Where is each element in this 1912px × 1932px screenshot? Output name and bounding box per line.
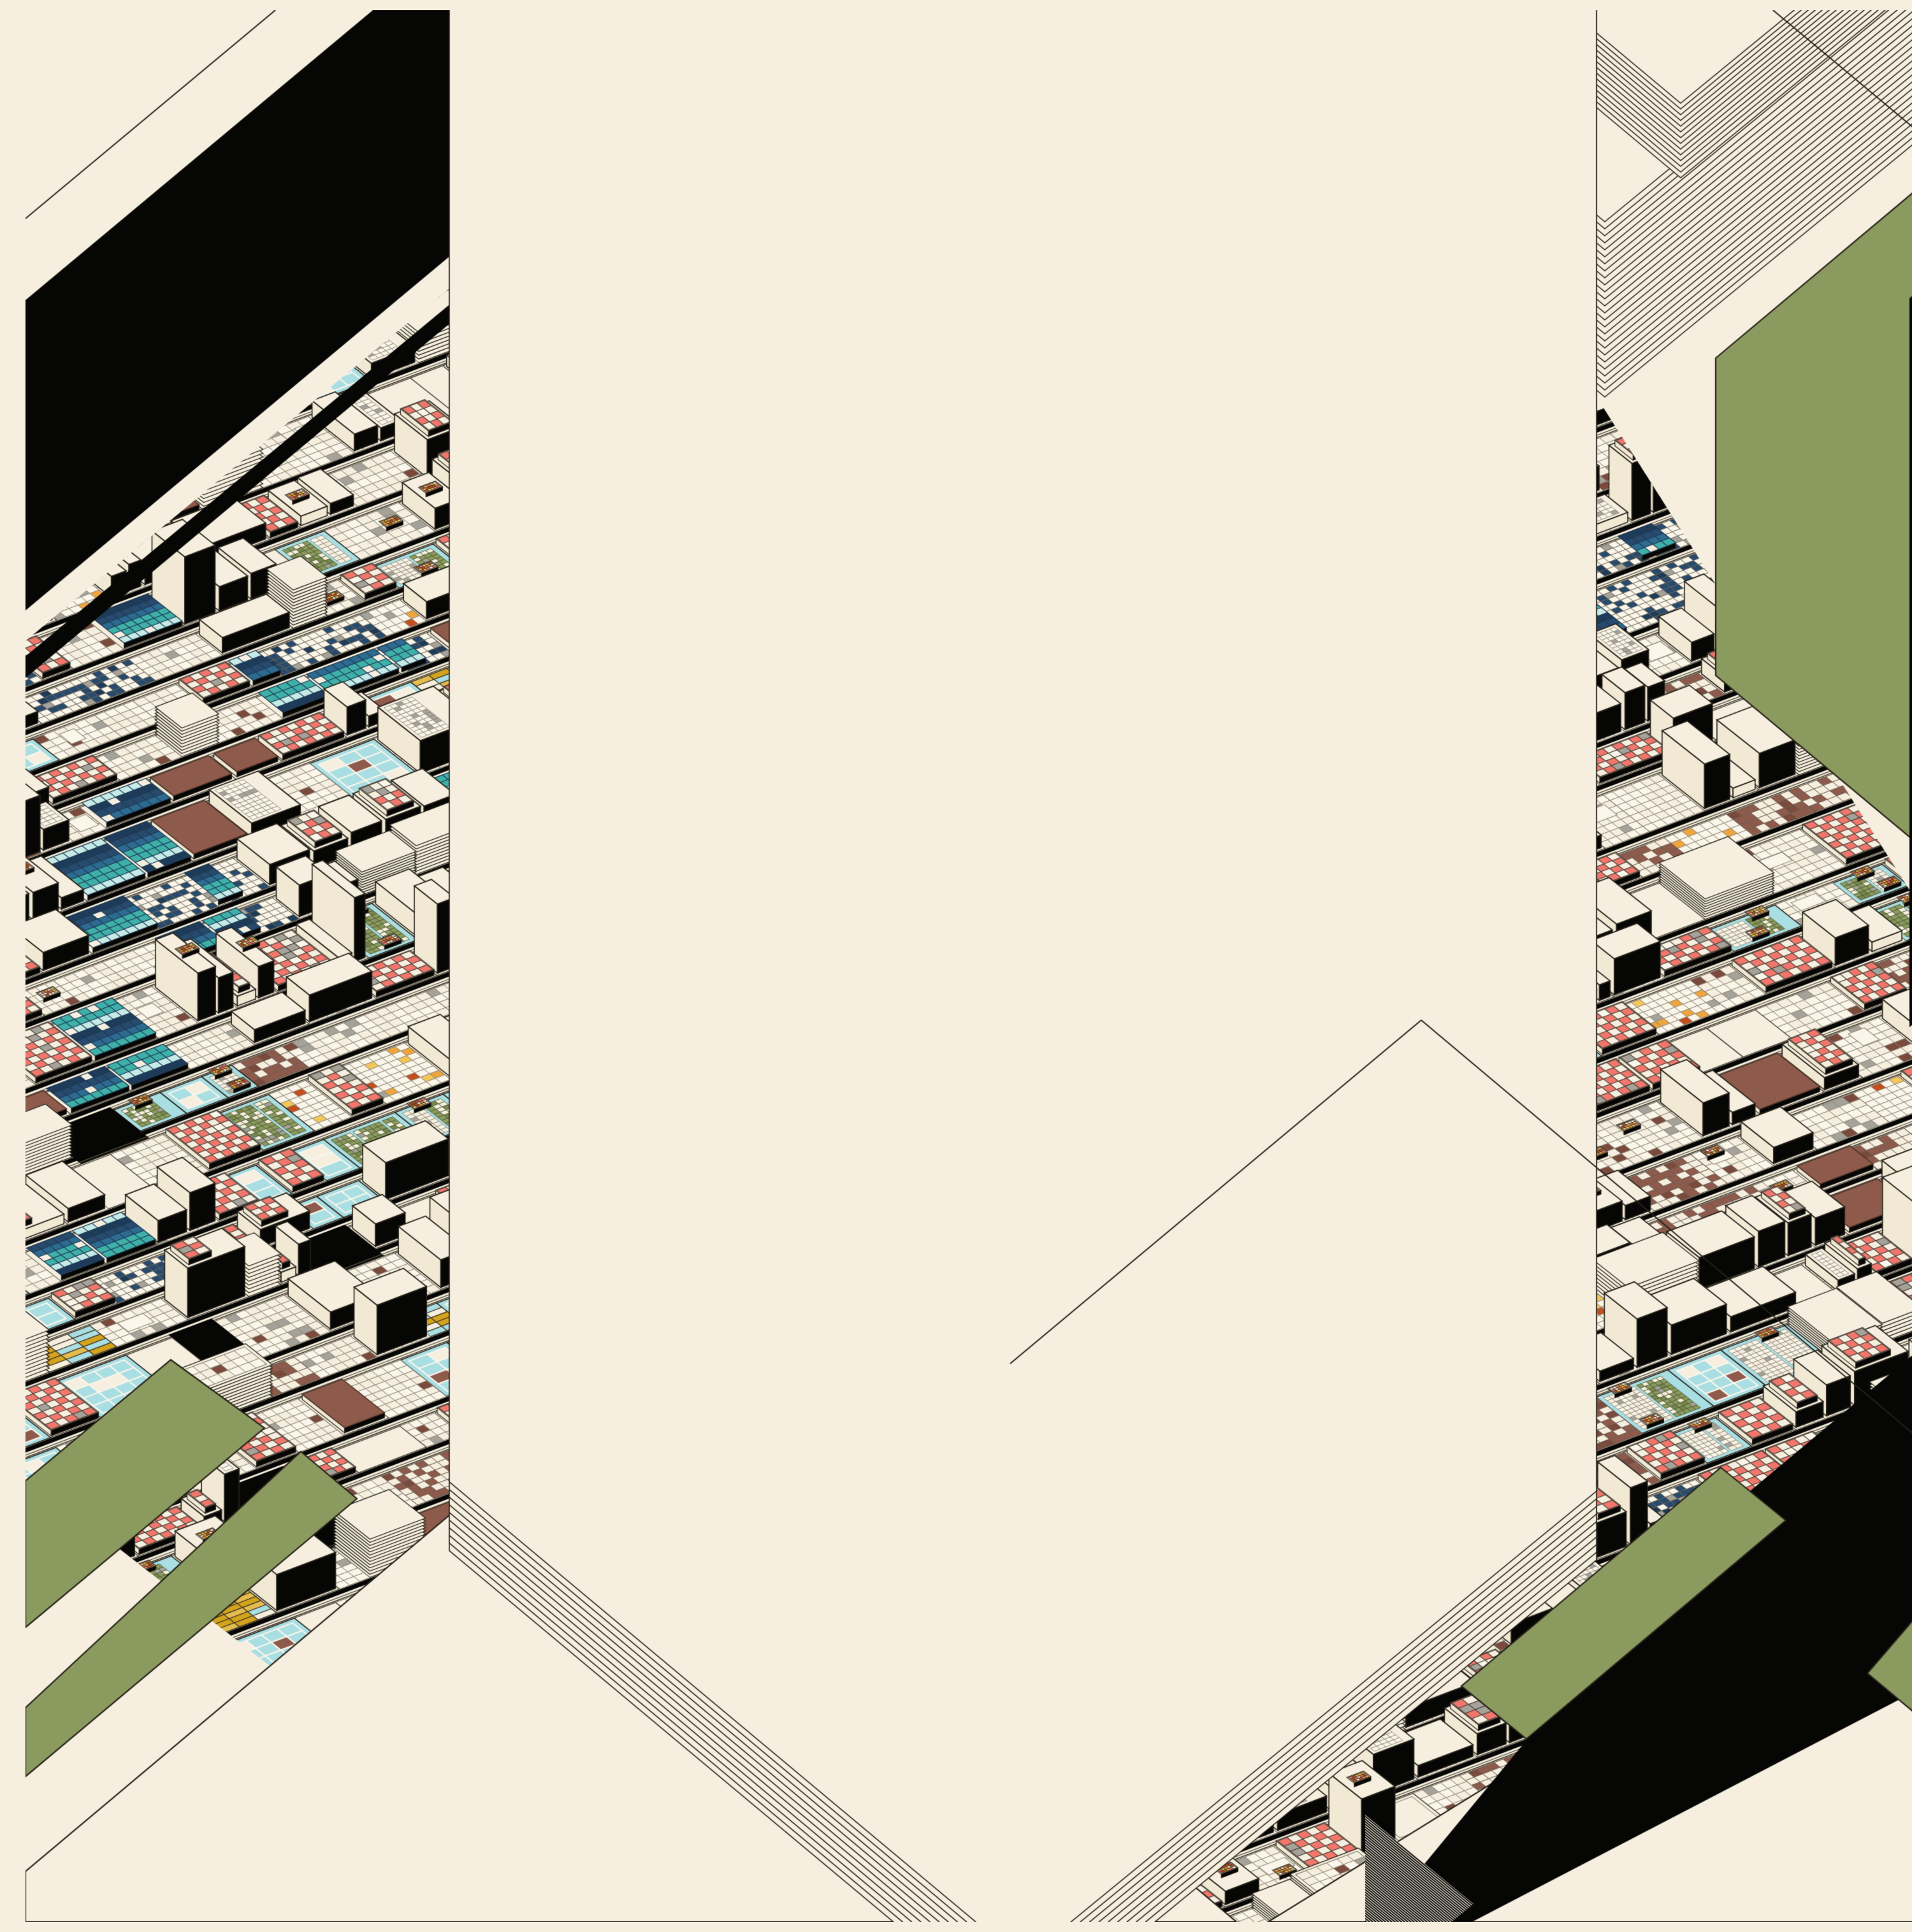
isometric-city-artwork [25, 10, 1912, 1922]
generative-city-canvas [25, 10, 1912, 1922]
